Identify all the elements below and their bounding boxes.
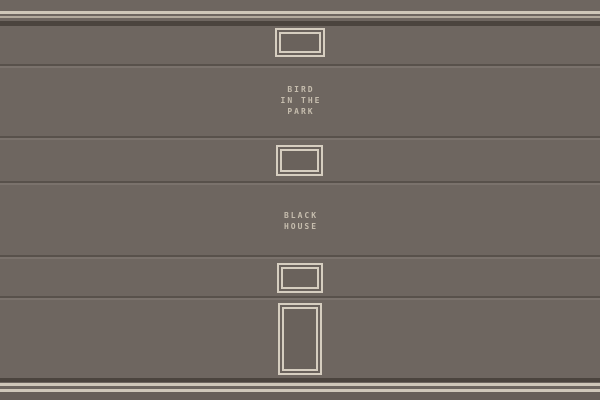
wall-scene: BIRD IN THE PARK BLACK HOUSE [0,0,600,400]
small-window-2[interactable] [276,145,323,176]
small-window-1[interactable] [275,28,325,57]
sign-line: BIRD [0,84,600,95]
panel-seam-5 [0,296,600,300]
sign-line: PARK [0,106,600,117]
sign-black-house[interactable]: BLACK HOUSE [0,210,600,232]
bottom-base-band [0,392,600,400]
top-groove-band [0,21,600,26]
sign-line: BLACK [0,210,600,221]
tall-door-window[interactable] [278,303,322,375]
panel-seam-4 [0,255,600,259]
panel-seam-2 [0,136,600,140]
panel-seam-1 [0,64,600,68]
sign-line: IN THE [0,95,600,106]
window-pane [280,149,319,172]
top-molding-stripe-1 [0,11,600,14]
panel-seam-3 [0,181,600,185]
small-window-3[interactable] [277,263,323,293]
window-pane [281,267,319,289]
top-molding-stripe-2 [0,16,600,18]
bottom-molding-stripe-1 [0,383,600,386]
sign-bird-in-the-park[interactable]: BIRD IN THE PARK [0,84,600,117]
window-pane [279,32,321,53]
bottom-groove-band [0,378,600,382]
window-pane [282,307,318,371]
sign-line: HOUSE [0,221,600,232]
